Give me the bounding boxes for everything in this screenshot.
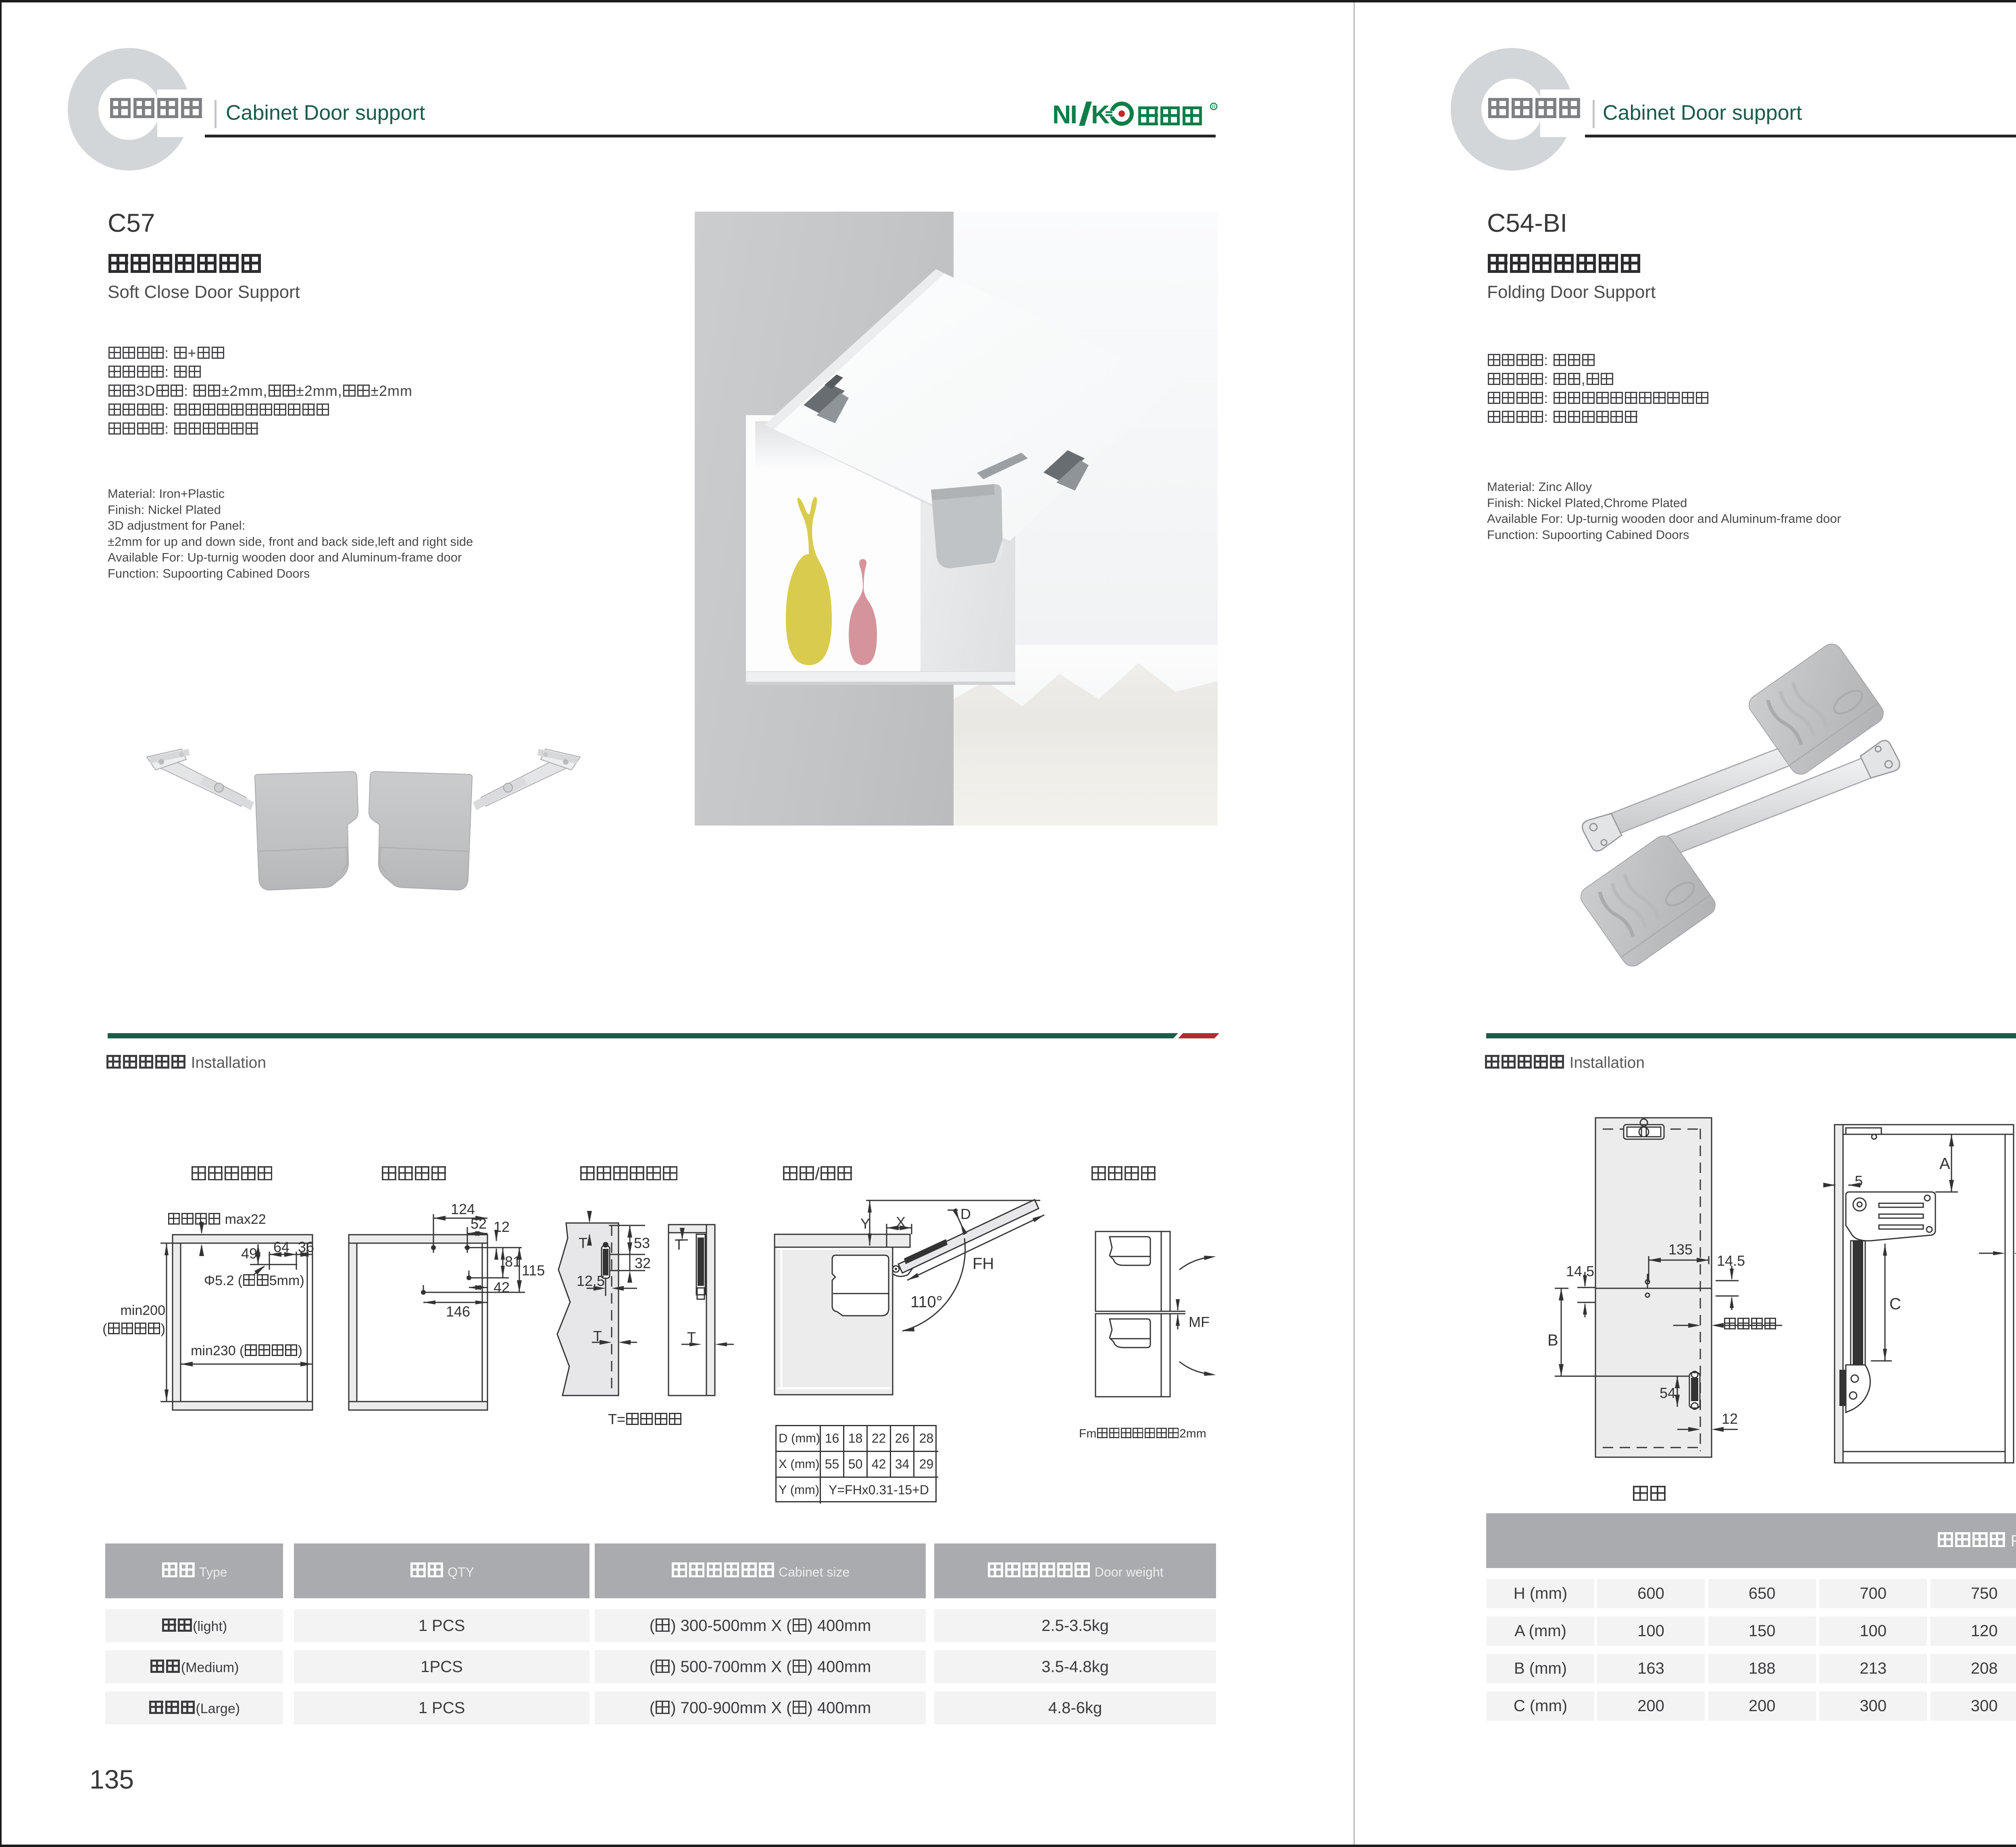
svg-text:14.5: 14.5 [1717,1252,1745,1269]
svg-text:54: 54 [1660,1385,1676,1401]
svg-text:135: 135 [1668,1241,1693,1258]
svg-text:12: 12 [1722,1410,1738,1427]
svg-text:C: C [1889,1295,1901,1313]
svg-text:A: A [1939,1155,1950,1173]
svg-text:14.5: 14.5 [1566,1263,1594,1279]
svg-text:5: 5 [1855,1173,1863,1189]
svg-text:B: B [1547,1331,1558,1349]
